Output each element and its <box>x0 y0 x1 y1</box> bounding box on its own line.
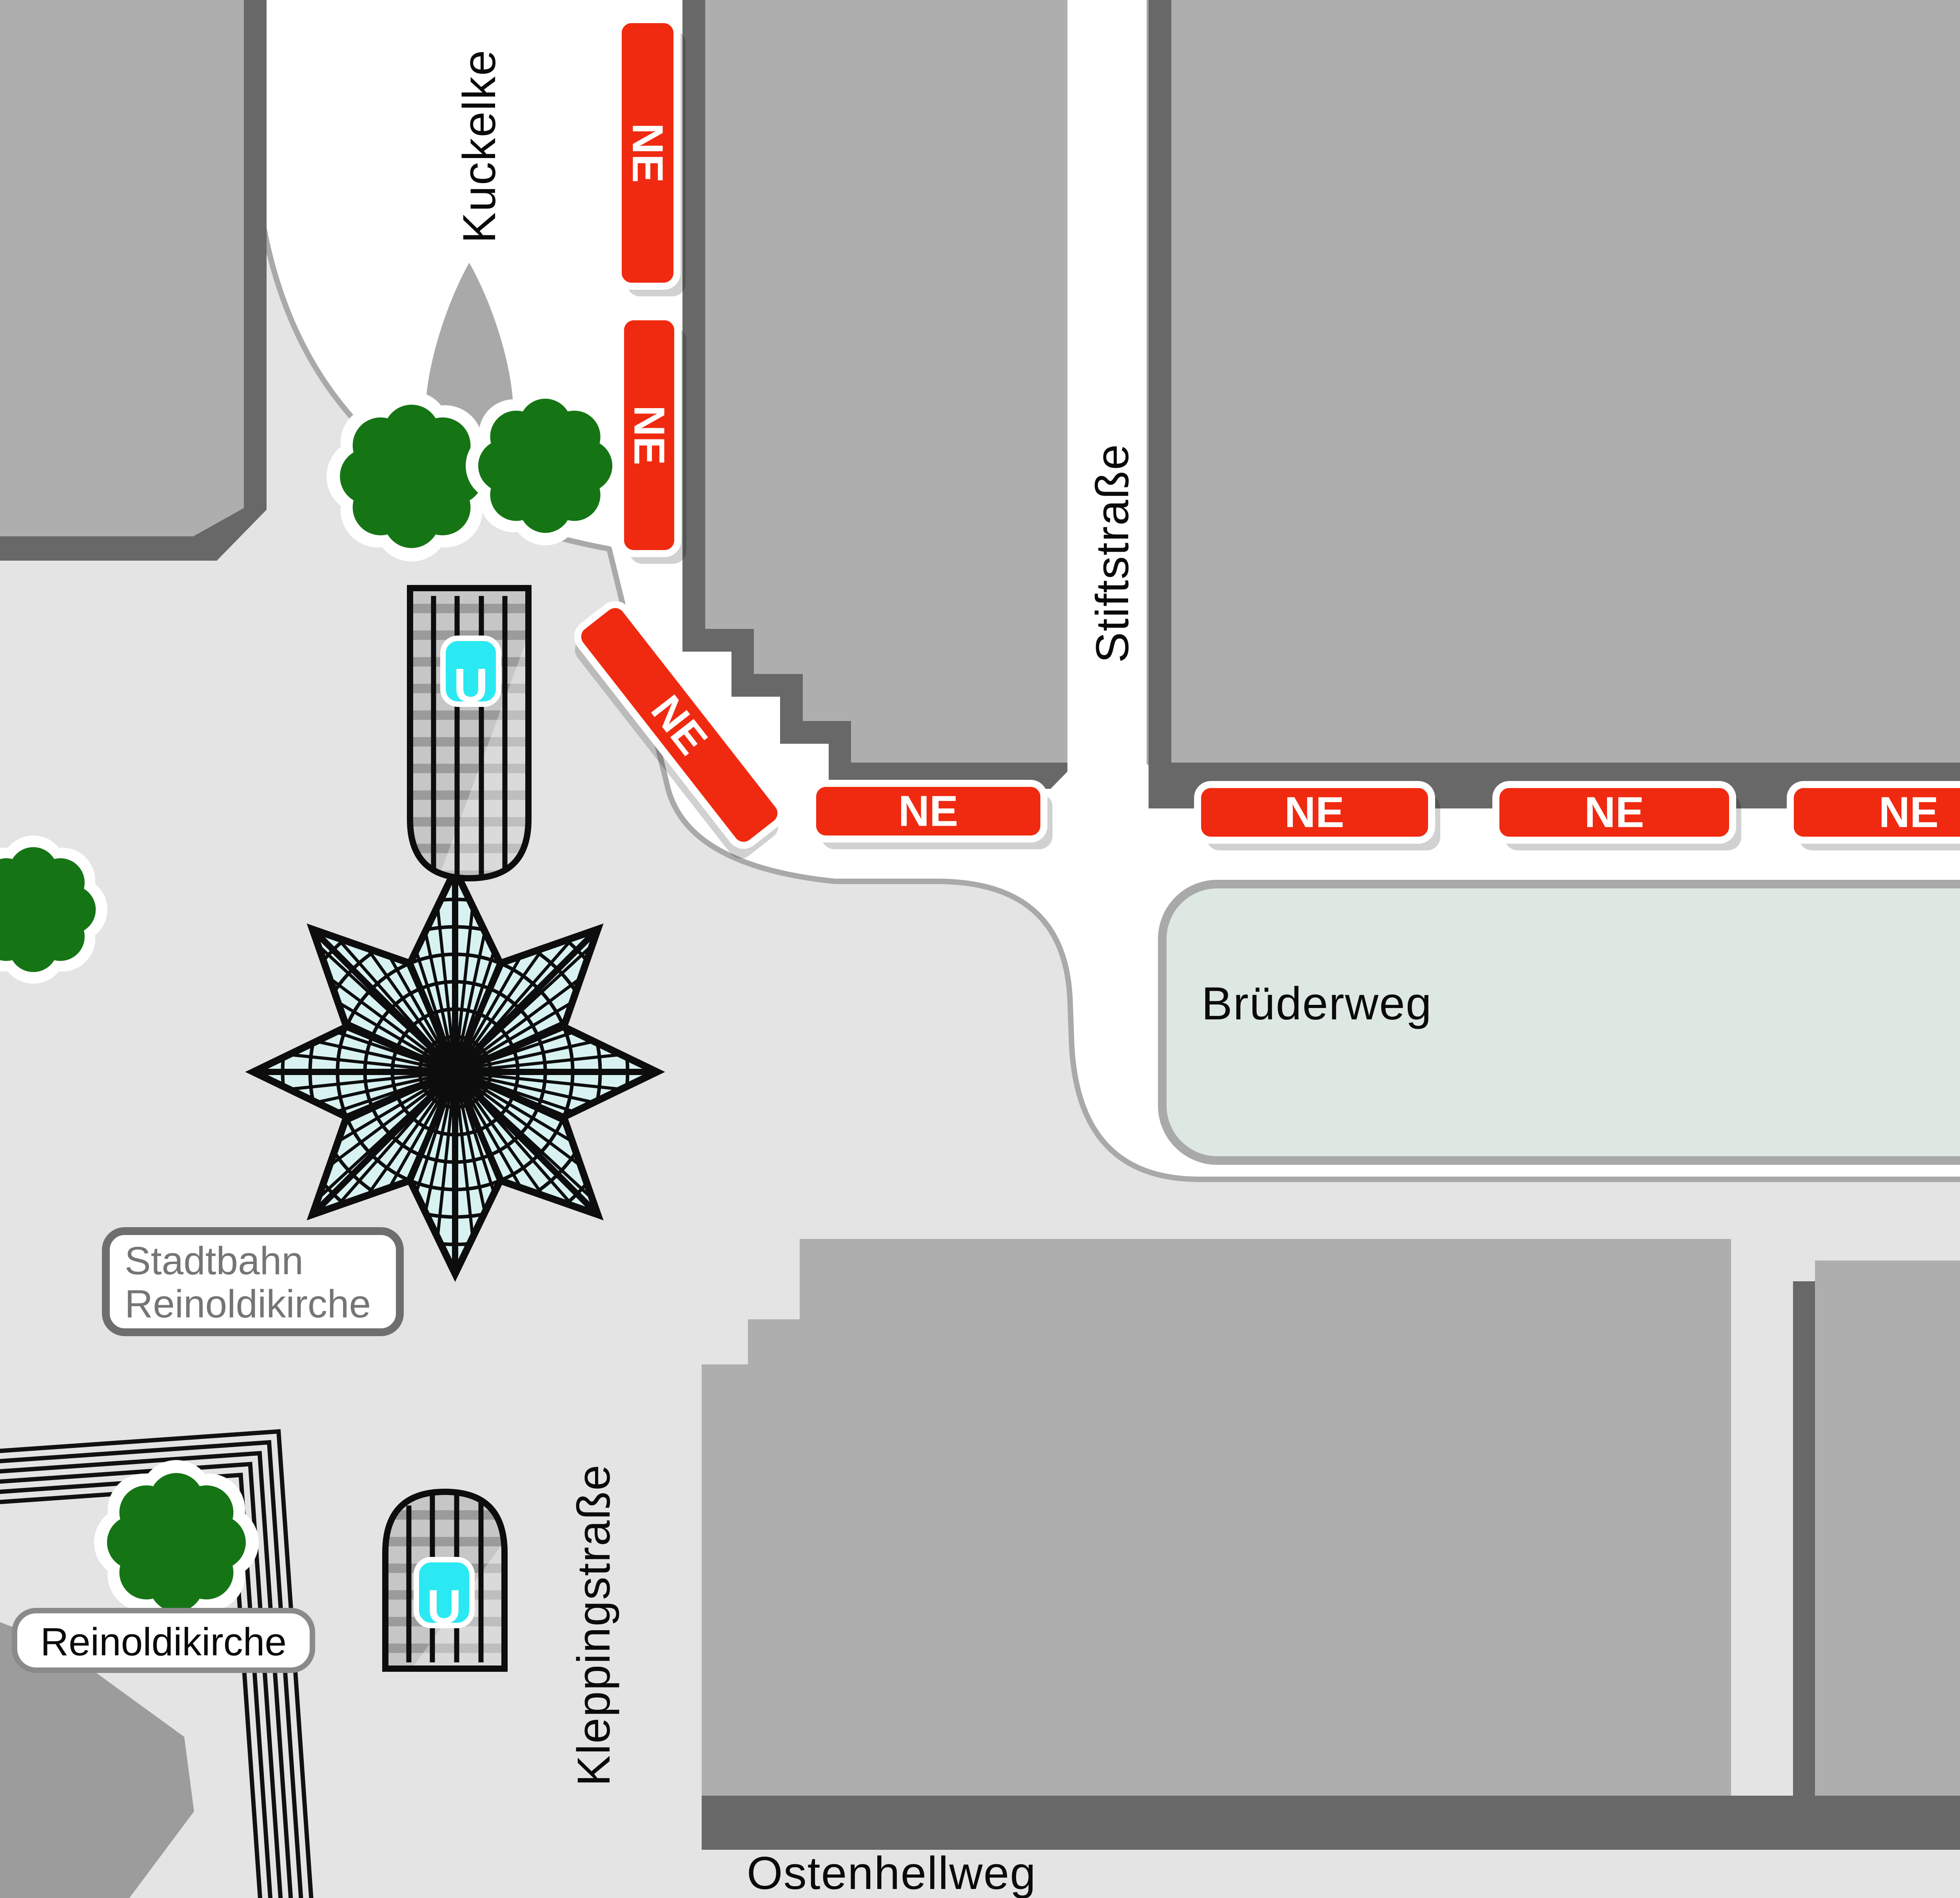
building-top-left <box>0 0 267 561</box>
svg-text:NE: NE <box>1879 788 1939 837</box>
tree <box>94 1460 259 1625</box>
street-label-kleppingstrasse: Kleppingstraße <box>568 1464 620 1786</box>
svg-text:NE: NE <box>624 123 672 183</box>
building-bottom-right <box>1793 1260 1960 1850</box>
svg-text:U: U <box>454 659 488 712</box>
ne-stop-badge: NE <box>1198 785 1440 850</box>
street-label-kuckelke: Kuckelke <box>454 49 505 243</box>
svg-text:U: U <box>427 1580 461 1633</box>
svg-text:Stadtbahn: Stadtbahn <box>125 1239 303 1283</box>
stadtbahn-station-sign: Stadtbahn Reinoldikirche <box>106 1231 400 1332</box>
building-bottom-shadow-band <box>702 1796 1960 1850</box>
subway-symbol-south: U <box>416 1560 472 1633</box>
street-label-ostenhellweg: Ostenhellweg <box>747 1847 1036 1898</box>
ne-stop-badge: NE <box>813 783 1053 849</box>
svg-text:NE: NE <box>625 405 673 465</box>
svg-text:NE: NE <box>898 787 958 835</box>
svg-text:NE: NE <box>1584 788 1644 837</box>
svg-text:Reinoldikirche: Reinoldikirche <box>125 1282 371 1326</box>
building-top-right <box>1149 0 1960 808</box>
subway-symbol-north: U <box>443 638 499 712</box>
tree <box>466 386 625 545</box>
street-label-stiftstrasse: Stiftstraße <box>1087 443 1138 663</box>
ne-stop-badge: NE <box>1790 785 1960 850</box>
svg-text:Reinoldikirche: Reinoldikirche <box>40 1620 287 1664</box>
svg-text:NE: NE <box>1285 788 1345 837</box>
reinoldikirche-sign: Reinoldikirche <box>15 1611 312 1670</box>
ne-stop-badge: NE <box>1496 785 1741 850</box>
stadtbahn-glass-roof-star <box>243 860 667 1284</box>
building-top-middle <box>682 0 1067 789</box>
subway-entrance-north: U <box>410 588 528 878</box>
ne-stop-badge: NE <box>618 20 686 296</box>
building-bottom-center <box>702 1239 1731 1796</box>
subway-entrance-south: U <box>385 1492 505 1669</box>
ne-stop-badge: NE <box>621 317 686 564</box>
street-label-bruederweg: Brüderweg <box>1201 978 1432 1030</box>
